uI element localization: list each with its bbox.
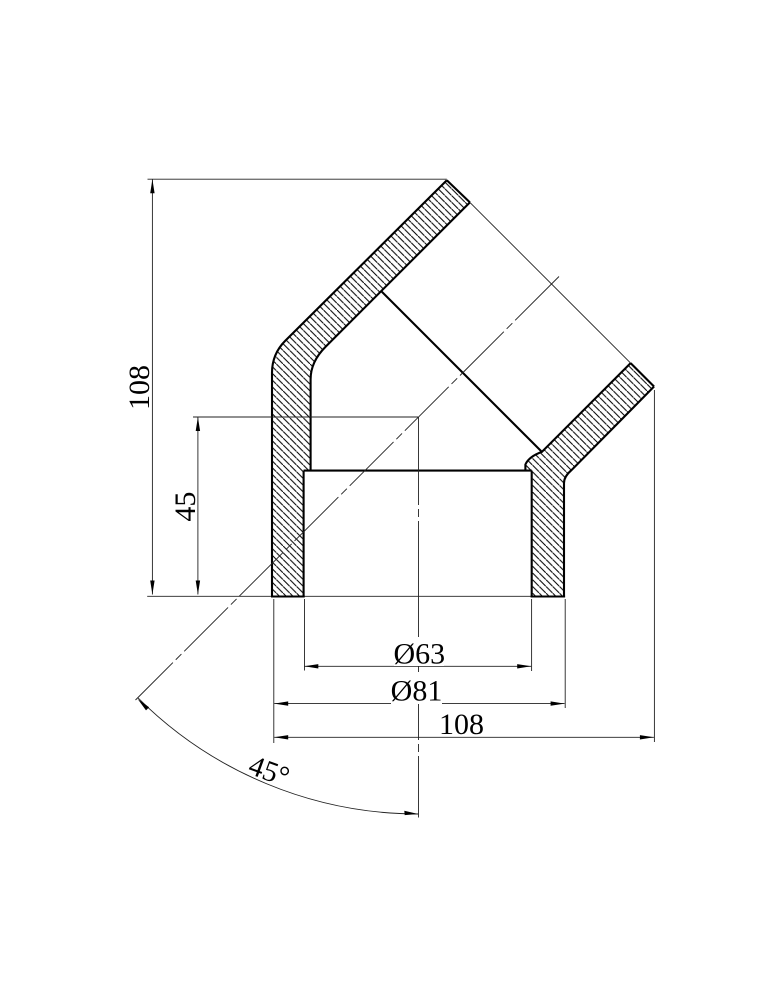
svg-text:108: 108: [439, 708, 484, 741]
svg-text:108: 108: [123, 365, 156, 410]
svg-text:Ø63: Ø63: [393, 637, 445, 670]
svg-text:Ø81: Ø81: [391, 675, 443, 708]
svg-text:45: 45: [169, 492, 202, 522]
